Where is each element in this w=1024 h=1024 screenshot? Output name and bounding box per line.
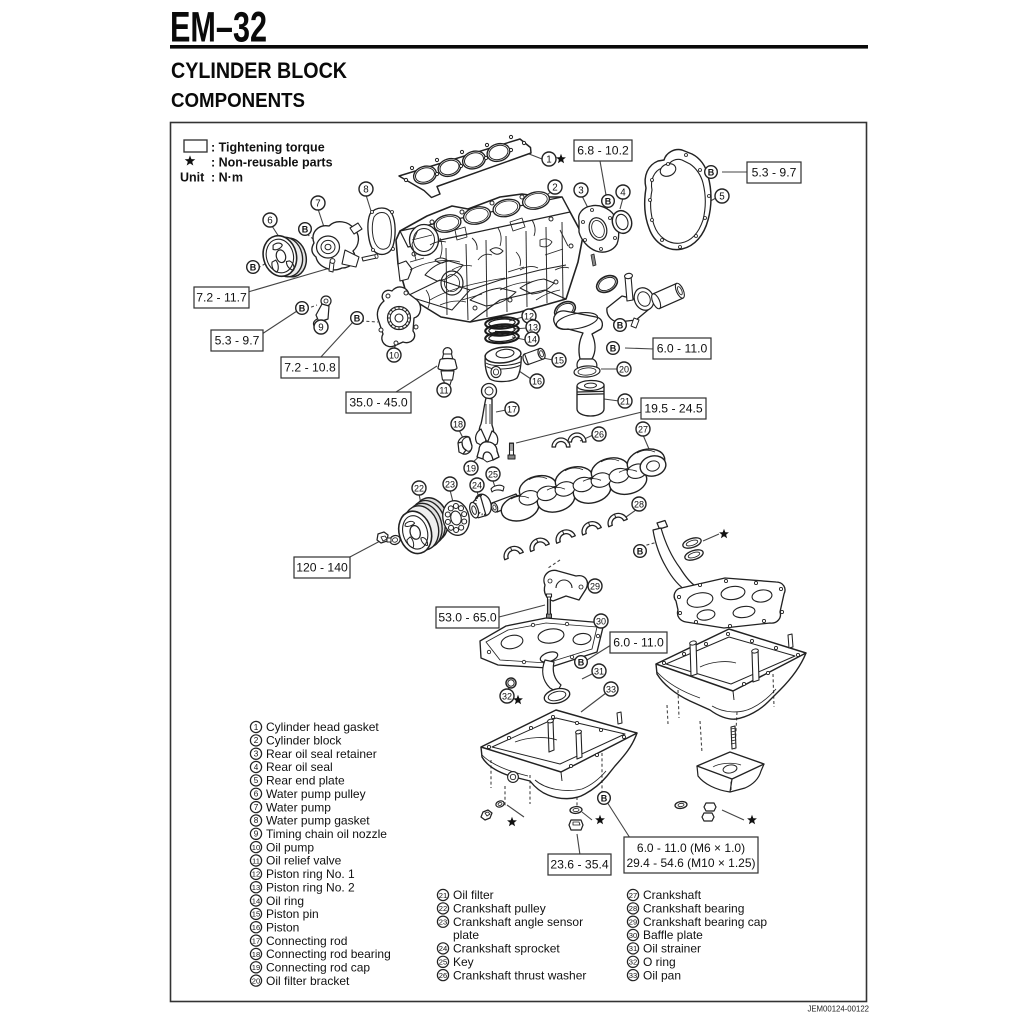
svg-text:22: 22 [439,904,447,913]
svg-text:Piston ring No. 2: Piston ring No. 2 [266,880,355,894]
svg-text:33: 33 [629,971,637,980]
svg-text:Timing chain oil nozzle: Timing chain oil nozzle [266,827,387,841]
svg-text:9: 9 [318,322,323,333]
svg-text:31: 31 [629,944,637,953]
svg-text:7.2 - 11.7: 7.2 - 11.7 [196,291,247,305]
svg-text:Piston pin: Piston pin [266,907,319,921]
svg-text:Piston: Piston [266,921,299,935]
svg-text:17: 17 [252,936,260,945]
svg-text:6.8 - 10.2: 6.8 - 10.2 [577,144,629,158]
svg-text:16: 16 [252,923,260,932]
svg-text:1: 1 [254,723,259,732]
svg-text:Oil relief valve: Oil relief valve [266,854,342,868]
svg-text:4: 4 [254,763,259,772]
svg-text:9: 9 [254,830,259,839]
svg-text:EM–32: EM–32 [170,4,267,52]
svg-text:Key: Key [453,955,474,969]
svg-text:14: 14 [252,896,260,905]
svg-text:6.0 - 11.0: 6.0 - 11.0 [613,636,664,650]
svg-text:B: B [354,314,361,324]
svg-text:23: 23 [439,918,447,927]
svg-text:35.0 - 45.0: 35.0 - 45.0 [349,396,407,410]
svg-text:Piston ring No. 1: Piston ring No. 1 [266,867,355,881]
svg-text:16: 16 [532,376,542,386]
svg-text:33: 33 [606,684,616,694]
svg-text:Oil strainer: Oil strainer [643,942,701,956]
svg-text:6.0 - 11.0 (M6 × 1.0): 6.0 - 11.0 (M6 × 1.0) [637,841,745,855]
svg-text:: N·m: : N·m [211,171,243,185]
svg-text:B: B [302,225,309,235]
svg-text:JEM00124-00122: JEM00124-00122 [807,1005,869,1014]
svg-text:Crankshaft: Crankshaft [643,888,702,902]
svg-text:B: B [637,547,644,557]
svg-text:11: 11 [439,385,448,395]
svg-text:Oil filter bracket: Oil filter bracket [266,974,350,988]
svg-text:20: 20 [619,364,629,374]
svg-text:Crankshaft bearing cap: Crankshaft bearing cap [643,915,767,929]
svg-text:25: 25 [439,958,447,967]
svg-text:27: 27 [629,891,637,900]
svg-text:26: 26 [594,429,604,439]
svg-text:Rear end plate: Rear end plate [266,774,345,788]
svg-text:5.3 - 9.7: 5.3 - 9.7 [752,166,797,180]
svg-text:Crankshaft bearing: Crankshaft bearing [643,902,744,916]
svg-text:12: 12 [252,870,260,879]
svg-text:17: 17 [507,404,517,414]
svg-text:6: 6 [267,215,273,226]
svg-text:23: 23 [445,479,455,489]
svg-text:18: 18 [252,950,260,959]
svg-text:B: B [610,344,617,354]
svg-text:Cylinder block: Cylinder block [266,734,342,748]
svg-text:Water pump gasket: Water pump gasket [266,814,370,828]
svg-text:24: 24 [472,480,482,490]
svg-text:Cylinder head gasket: Cylinder head gasket [266,720,379,734]
svg-text:29: 29 [629,918,637,927]
svg-text:Crankshaft sprocket: Crankshaft sprocket [453,942,560,956]
svg-text:8: 8 [363,184,369,195]
svg-text:10: 10 [389,350,399,360]
svg-text:120 - 140: 120 - 140 [296,561,348,575]
svg-text:B: B [578,658,585,668]
svg-text:28: 28 [629,904,637,913]
svg-text:Baffle plate: Baffle plate [643,928,703,942]
svg-text:COMPONENTS: COMPONENTS [171,90,305,112]
svg-text:29.4 - 54.6 (M10 × 1.25): 29.4 - 54.6 (M10 × 1.25) [626,856,755,870]
svg-text:3: 3 [254,750,259,759]
svg-text:19: 19 [252,963,260,972]
svg-text:Crankshaft angle sensor: Crankshaft angle sensor [453,915,583,929]
svg-text:22: 22 [414,483,424,493]
svg-text:13: 13 [252,883,260,892]
svg-text:Connecting rod bearing: Connecting rod bearing [266,947,391,961]
svg-text:29: 29 [590,581,600,591]
svg-text:31: 31 [594,666,604,676]
svg-text:: Non-reusable parts: : Non-reusable parts [211,156,333,170]
svg-text:2: 2 [552,182,557,193]
svg-text:Connecting rod: Connecting rod [266,934,347,948]
svg-text:15: 15 [554,355,564,365]
svg-text:Crankshaft pulley: Crankshaft pulley [453,902,546,916]
svg-text:13: 13 [528,322,538,332]
svg-text:7: 7 [254,803,259,812]
svg-text:7.2 - 10.8: 7.2 - 10.8 [284,361,336,375]
svg-text:4: 4 [620,187,626,198]
svg-text:CYLINDER BLOCK: CYLINDER BLOCK [171,58,347,83]
svg-text:14: 14 [527,334,537,344]
svg-text:Unit: Unit [180,171,205,185]
svg-text:7: 7 [315,198,320,209]
svg-text:O ring: O ring [643,955,676,969]
svg-text:6.0 - 11.0: 6.0 - 11.0 [657,342,708,356]
svg-text:Oil ring: Oil ring [266,894,304,908]
svg-text:24: 24 [439,944,447,953]
svg-text:Crankshaft thrust washer: Crankshaft thrust washer [453,968,586,982]
svg-text:B: B [617,321,624,331]
svg-text:Connecting rod cap: Connecting rod cap [266,961,370,975]
svg-text:23.6 - 35.4: 23.6 - 35.4 [550,858,608,872]
svg-text:32: 32 [502,691,512,701]
svg-text:28: 28 [634,499,644,509]
svg-text:10: 10 [252,843,260,852]
svg-text:19.5 - 24.5: 19.5 - 24.5 [644,402,702,416]
svg-text:2: 2 [254,736,259,745]
svg-text:Oil pump: Oil pump [266,840,314,854]
svg-text:8: 8 [254,816,259,825]
svg-text:20: 20 [252,976,260,985]
svg-text:B: B [708,168,715,178]
svg-text:30: 30 [596,616,606,626]
svg-text:Rear oil seal: Rear oil seal [266,760,333,774]
svg-text:18: 18 [453,419,463,429]
svg-text:Oil pan: Oil pan [643,968,681,982]
svg-text:Rear oil seal retainer: Rear oil seal retainer [266,747,377,761]
svg-text:21: 21 [439,891,447,900]
svg-text:3: 3 [578,185,584,196]
svg-text:B: B [299,304,306,314]
svg-text:32: 32 [629,958,637,967]
svg-text:5: 5 [254,776,259,785]
svg-text:26: 26 [439,971,447,980]
svg-text:: Tightening torque: : Tightening torque [211,141,325,155]
svg-text:B: B [601,794,608,804]
svg-text:B: B [605,197,612,207]
svg-text:27: 27 [638,424,648,434]
svg-text:5: 5 [719,191,725,202]
svg-text:plate: plate [453,928,479,942]
svg-text:19: 19 [466,463,476,473]
svg-text:6: 6 [254,790,259,799]
svg-text:21: 21 [620,396,630,406]
svg-text:1: 1 [546,154,551,165]
svg-text:25: 25 [488,469,498,479]
svg-text:53.0 - 65.0: 53.0 - 65.0 [438,611,496,625]
svg-text:Oil filter: Oil filter [453,888,494,902]
svg-text:11: 11 [252,856,260,865]
svg-text:B: B [250,263,257,273]
svg-text:Water pump: Water pump [266,800,331,814]
svg-text:5.3 - 9.7: 5.3 - 9.7 [215,334,260,348]
svg-text:30: 30 [629,931,637,940]
svg-text:Water pump pulley: Water pump pulley [266,787,366,801]
svg-text:15: 15 [252,910,260,919]
